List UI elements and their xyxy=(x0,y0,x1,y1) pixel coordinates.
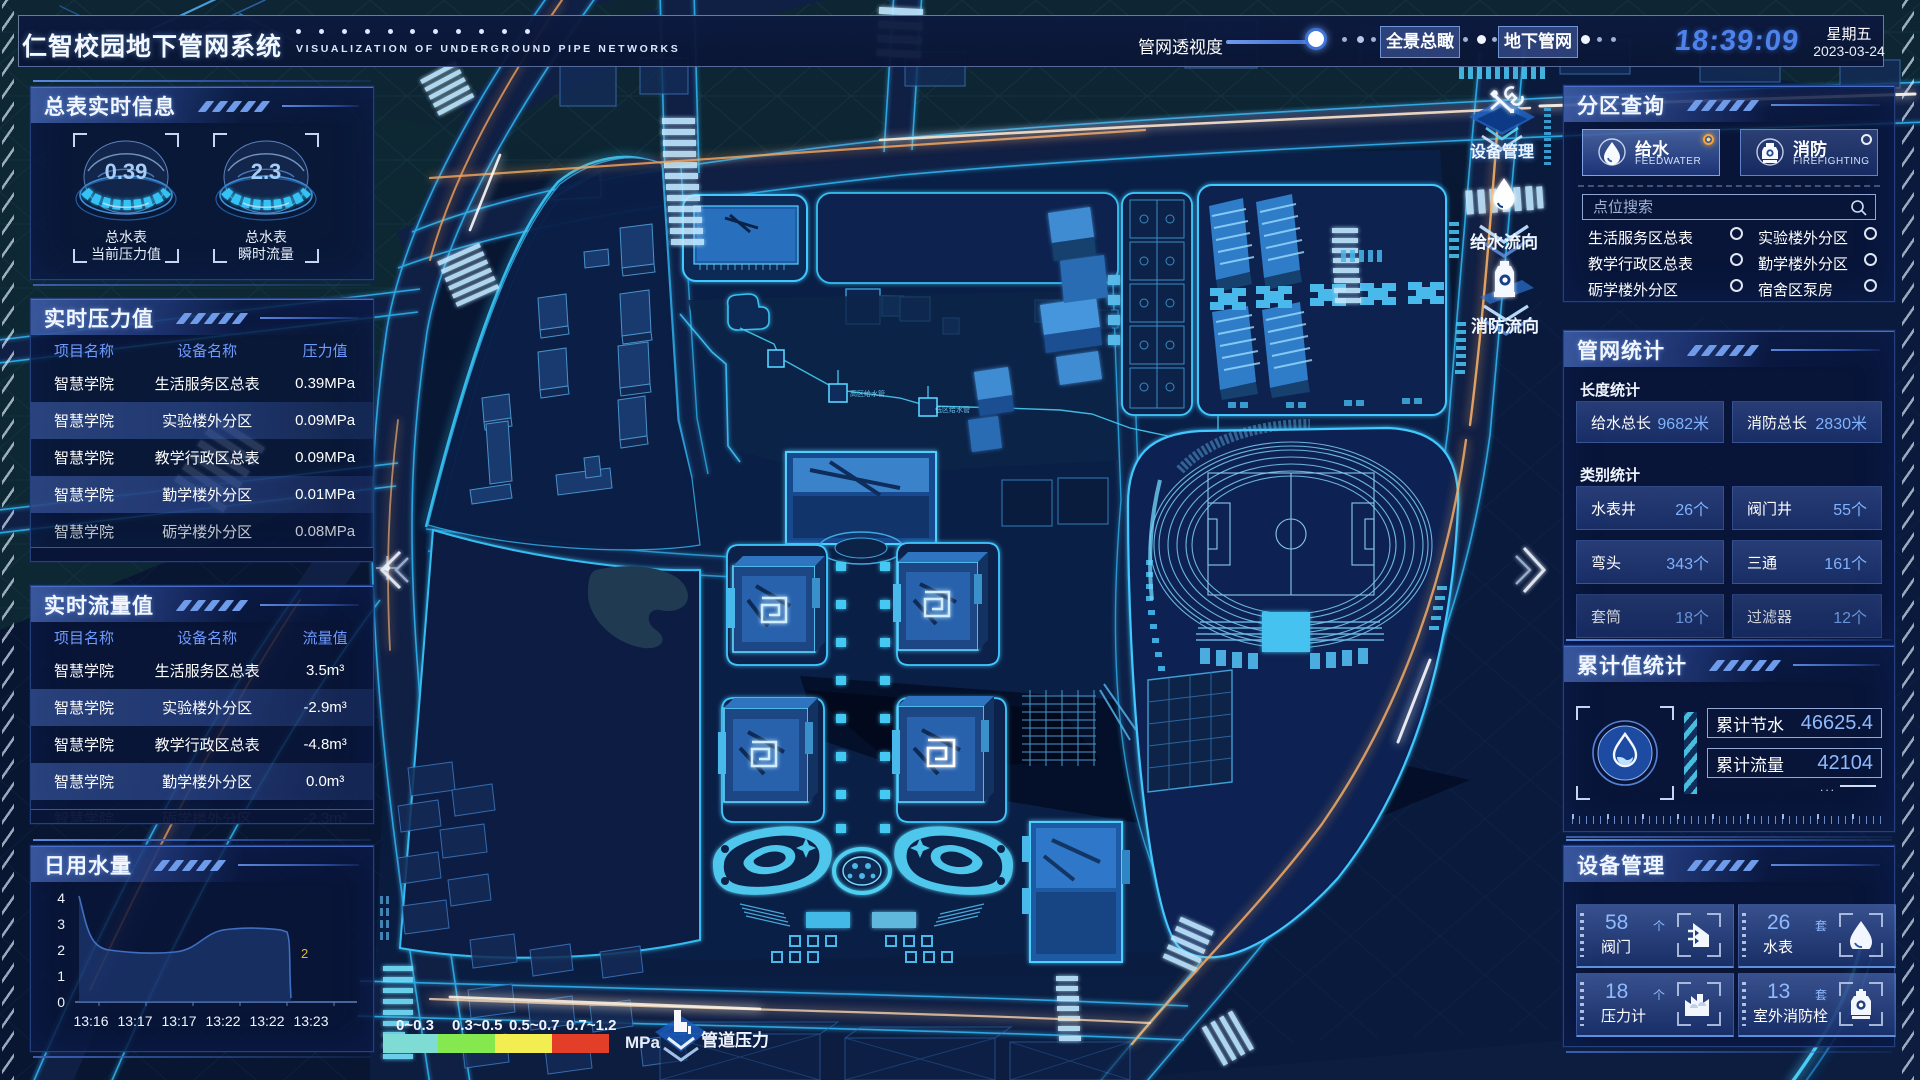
svg-text:给水流向: 给水流向 xyxy=(1470,232,1538,252)
svg-text:2: 2 xyxy=(57,942,65,958)
svg-text:13:22: 13:22 xyxy=(205,1013,240,1029)
svg-text:13:17: 13:17 xyxy=(117,1013,152,1029)
svg-text:13:17: 13:17 xyxy=(161,1013,196,1029)
svg-text:0.3~0.5: 0.3~0.5 xyxy=(452,1017,502,1034)
svg-text:13:22: 13:22 xyxy=(249,1013,284,1029)
svg-text:MPa: MPa xyxy=(625,1033,661,1052)
svg-text:高区给水管: 高区给水管 xyxy=(850,389,885,398)
svg-text:4: 4 xyxy=(57,890,65,906)
svg-text:0: 0 xyxy=(57,994,65,1010)
svg-text:设备管理: 设备管理 xyxy=(1470,142,1534,161)
svg-text:低区给水管: 低区给水管 xyxy=(935,405,970,414)
svg-text:3: 3 xyxy=(57,916,65,932)
svg-text:2: 2 xyxy=(301,946,308,961)
svg-text:0.7~1.2: 0.7~1.2 xyxy=(566,1017,616,1034)
svg-text:0~0.3: 0~0.3 xyxy=(396,1017,434,1034)
svg-text:消防流向: 消防流向 xyxy=(1471,316,1539,336)
svg-text:0.5~0.7: 0.5~0.7 xyxy=(509,1017,559,1034)
svg-text:1: 1 xyxy=(57,968,65,984)
svg-text:13:16: 13:16 xyxy=(73,1013,108,1029)
svg-text:13:23: 13:23 xyxy=(293,1013,328,1029)
svg-text:管道压力: 管道压力 xyxy=(701,1030,769,1050)
